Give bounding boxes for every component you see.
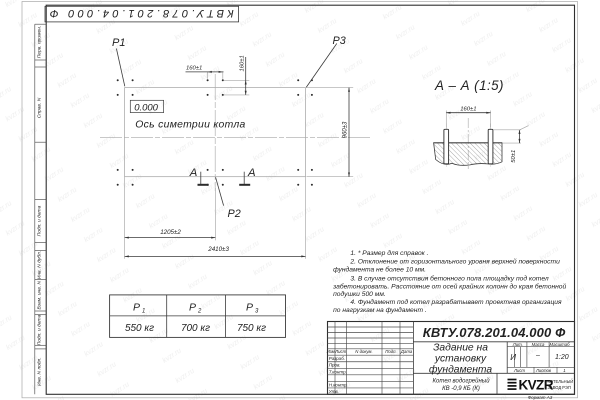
svg-text:Масса: Масса: [532, 342, 545, 347]
svg-text:Н.контр.: Н.контр.: [329, 382, 348, 387]
svg-text:Лист: Лист: [334, 349, 346, 354]
svg-text:Р3: Р3: [333, 35, 346, 47]
svg-text:50±1: 50±1: [511, 150, 517, 163]
svg-text:КВТУ.078.201.04.000 Ф: КВТУ.078.201.04.000 Ф: [423, 325, 566, 340]
svg-text:КОТЕЛЬНЫЙ: КОТЕЛЬНЫЙ: [548, 379, 574, 384]
svg-text:1: 1: [142, 309, 145, 315]
svg-text:Подп. и дата: Подп. и дата: [37, 314, 43, 345]
svg-text:Лит.: Лит.: [512, 342, 523, 347]
svg-text:160±1: 160±1: [240, 55, 246, 71]
svg-text:1. * Размер для справок .: 1. * Размер для справок .: [350, 249, 428, 257]
svg-text:Перв. примен.: Перв. примен.: [37, 26, 43, 59]
svg-text:2410±3: 2410±3: [207, 246, 229, 253]
svg-text:Дата: Дата: [400, 349, 413, 354]
svg-text:750 кг: 750 кг: [237, 323, 266, 334]
svg-text:по нагрузкам на фундамент .: по нагрузкам на фундамент .: [333, 306, 427, 314]
svg-text:Разраб.: Разраб.: [329, 356, 345, 361]
svg-text:Задание на: Задание на: [433, 342, 488, 353]
svg-text:Р2: Р2: [228, 208, 241, 220]
svg-text:забетонировать. Расстояние от: забетонировать. Расстояние от осей крайн…: [332, 282, 566, 290]
svg-text:0.000: 0.000: [134, 102, 158, 113]
svg-text:1:20: 1:20: [555, 354, 569, 361]
svg-text:Инв. N дубл.: Инв. N дубл.: [37, 251, 43, 279]
svg-text:Р: Р: [246, 302, 253, 314]
svg-text:Т.контр.: Т.контр.: [329, 369, 347, 374]
svg-text:Пров.: Пров.: [329, 363, 341, 368]
svg-text:КВ -0,9 КБ (К): КВ -0,9 КБ (К): [442, 386, 480, 392]
svg-text:1205±2: 1205±2: [160, 229, 181, 236]
svg-text:700 кг: 700 кг: [181, 323, 210, 334]
svg-text:А: А: [247, 167, 256, 179]
svg-text:N докум.: N докум.: [355, 349, 372, 354]
svg-text:А: А: [189, 167, 198, 179]
svg-text:И: И: [510, 353, 516, 362]
svg-text:А – А (1:5): А – А (1:5): [434, 78, 504, 93]
svg-text:Котел водогрейный: Котел водогрейный: [432, 378, 490, 385]
svg-text:550 кг: 550 кг: [125, 323, 154, 334]
svg-text:3. В случае отсутствия бетонн: 3. В случае отсутствия бетонного пола пл…: [350, 274, 548, 282]
svg-text:960±3: 960±3: [342, 121, 348, 138]
svg-text:160±1: 160±1: [460, 106, 476, 112]
svg-text:Инв. N подл.: Инв. N подл.: [37, 357, 43, 386]
svg-text:Листов: Листов: [535, 368, 552, 373]
svg-text:2. Отклонение от горизонтальн: 2. Отклонение от горизонтального уровня …: [349, 258, 560, 266]
svg-text:Подп.: Подп.: [385, 349, 396, 354]
svg-text:2: 2: [197, 309, 202, 315]
svg-text:Формат А3: Формат А3: [528, 395, 553, 400]
svg-text:Утв.: Утв.: [329, 389, 339, 394]
svg-text:Масштаб: Масштаб: [549, 342, 570, 347]
svg-text:160±1: 160±1: [186, 66, 202, 72]
svg-text:Лист: Лист: [513, 368, 525, 373]
svg-text:Ось симетрии котла: Ось симетрии котла: [135, 120, 245, 131]
svg-text:Взам. инв. N: Взам. инв. N: [37, 280, 43, 309]
svg-text:ЗАВОД РЭП: ЗАВОД РЭП: [548, 385, 571, 390]
svg-text:Подп. и дата: Подп. и дата: [37, 205, 43, 236]
svg-text:4. Фундамент под котел разраб: 4. Фундамент под котел разрабатывает про…: [350, 298, 562, 306]
svg-text:Р: Р: [189, 302, 196, 314]
svg-text:установку: установку: [434, 354, 487, 365]
svg-text:Справ. N: Справ. N: [37, 97, 43, 118]
svg-text:Р1: Р1: [112, 37, 125, 49]
svg-text:Р: Р: [133, 302, 140, 314]
svg-text:фундамента: фундамента: [429, 364, 493, 376]
svg-text:подушки 500 мм.: подушки 500 мм.: [333, 290, 386, 298]
svg-text:фундамента не более 10 мм.: фундамента не более 10 мм.: [333, 266, 426, 274]
svg-text:–: –: [535, 353, 540, 360]
